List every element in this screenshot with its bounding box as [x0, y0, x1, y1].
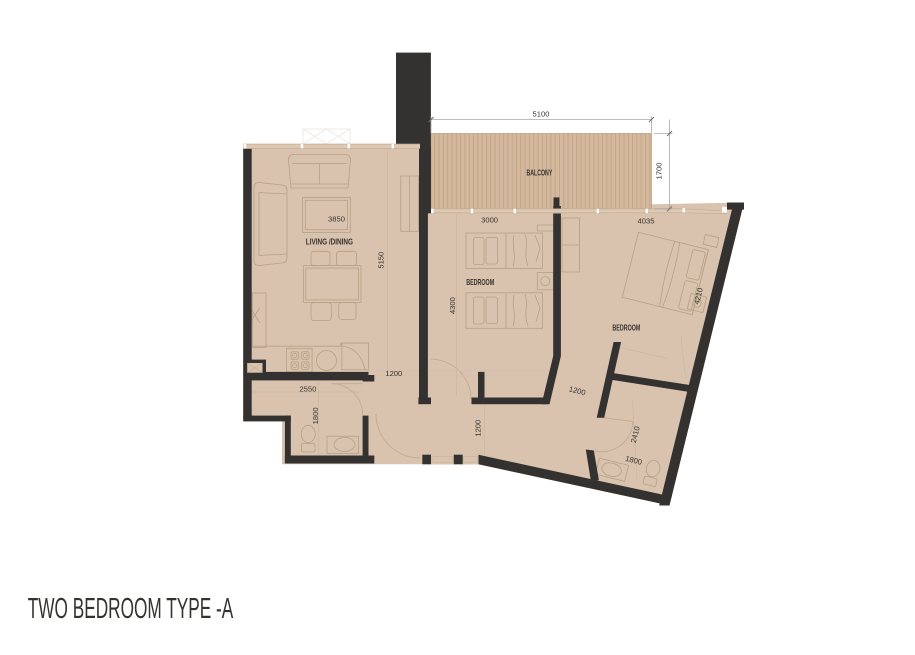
- svg-text:BEDROOM: BEDROOM: [466, 279, 494, 287]
- svg-text:1700: 1700: [655, 163, 664, 180]
- svg-text:4035: 4035: [638, 216, 655, 225]
- svg-text:3000: 3000: [481, 215, 498, 224]
- svg-text:BEDROOM: BEDROOM: [612, 324, 640, 332]
- svg-text:LIVING /DINING: LIVING /DINING: [306, 236, 353, 246]
- svg-text:3850: 3850: [328, 215, 345, 224]
- svg-text:BALCONY: BALCONY: [526, 169, 552, 177]
- svg-text:1200: 1200: [474, 420, 483, 437]
- svg-text:5150: 5150: [377, 252, 386, 269]
- svg-text:1200: 1200: [385, 369, 402, 378]
- svg-text:1800: 1800: [311, 407, 320, 424]
- svg-text:5100: 5100: [533, 110, 550, 119]
- svg-text:TWO BEDROOM TYPE -A: TWO BEDROOM TYPE -A: [28, 593, 234, 624]
- svg-text:2550: 2550: [299, 384, 316, 393]
- svg-text:4300: 4300: [448, 297, 457, 314]
